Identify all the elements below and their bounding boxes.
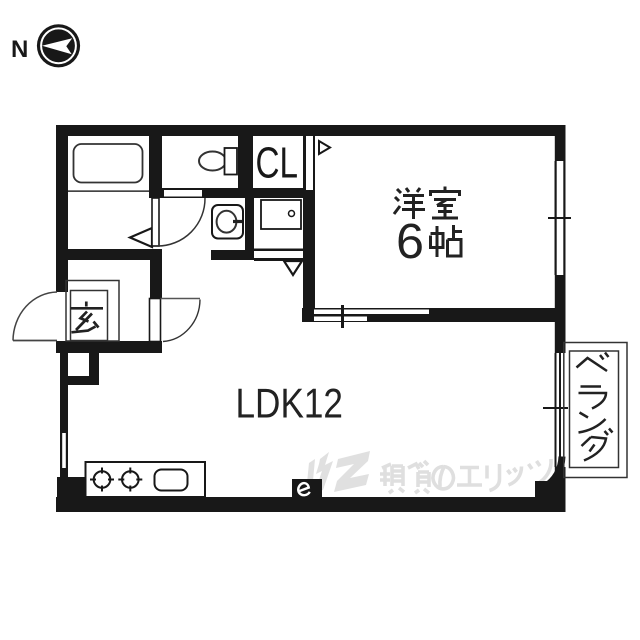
- svg-text:6: 6: [396, 214, 424, 269]
- svg-text:LDK12: LDK12: [236, 380, 344, 427]
- svg-text:CL: CL: [256, 139, 299, 188]
- svg-text:N: N: [11, 36, 28, 63]
